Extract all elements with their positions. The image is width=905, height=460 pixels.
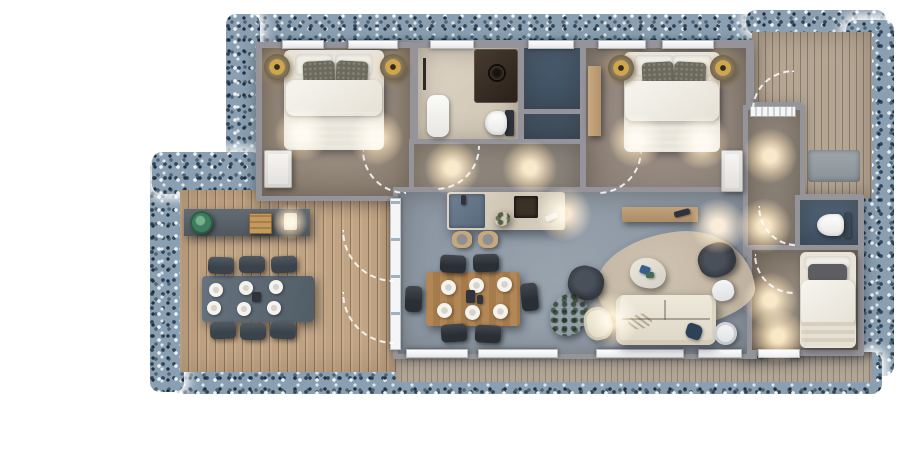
dining-centerpiece-small	[477, 295, 483, 304]
bedroom3-blanket	[801, 322, 855, 346]
window-bathroom-top	[430, 40, 474, 49]
dining-plate-6	[493, 304, 508, 319]
kitchen-stool-2	[478, 231, 498, 248]
room-storage-upper	[524, 48, 580, 110]
terrace-plate-4	[207, 301, 221, 315]
window-living-bottom-3	[596, 349, 684, 358]
terrace-planter-green	[190, 211, 213, 234]
bedroom1-wardrobe	[264, 150, 292, 188]
dining-chair-top-1	[440, 254, 467, 273]
dining-chair-left	[405, 286, 423, 313]
bedroom2-lamp-right	[715, 60, 731, 76]
terrace-chair-top-3	[271, 255, 298, 273]
bedroom1-duvet	[286, 80, 382, 116]
bathroom-toilet	[485, 111, 507, 135]
window-bedroom2-top-left	[598, 40, 646, 49]
window-storage-top	[528, 40, 574, 49]
terrace-plate-1	[209, 283, 223, 297]
dining-plate-3	[497, 277, 512, 292]
dining-plate-4	[437, 303, 452, 318]
bedroom2-blanket	[625, 117, 719, 151]
gravel-border-topleft-corner	[152, 152, 262, 194]
window-bedroom1-top-left	[282, 40, 324, 49]
terrace-table-centerpiece	[252, 292, 261, 302]
bathroom-shower-head	[490, 66, 504, 80]
window-bedroom1-top-right	[348, 40, 398, 49]
sofa-seam-vertical	[664, 300, 666, 320]
kitchen-faucet	[461, 195, 466, 205]
window-living-bottom-2	[478, 349, 558, 358]
terrace-chair-top-1	[208, 257, 235, 275]
terrace-chair-bottom-1	[210, 322, 237, 340]
dining-plate-5	[465, 305, 480, 320]
bathroom-towel-rail	[423, 58, 426, 90]
bedroom2-desk	[588, 66, 601, 136]
dining-chair-top-2	[473, 254, 500, 273]
bedroom2-duvet	[625, 81, 719, 121]
window-bedroom2-top-right	[662, 40, 714, 49]
window-bedroom3-bottom	[758, 349, 800, 358]
dining-chair-bottom-2	[475, 324, 502, 343]
dining-plate-1	[441, 280, 456, 295]
dining-chair-bottom-1	[440, 323, 467, 343]
terrace-crate	[249, 213, 272, 234]
bedroom1-blanket	[286, 112, 382, 148]
bedroom1-lamp-left	[269, 59, 285, 75]
bedroom1-lamp-right	[385, 59, 401, 75]
wc-toilet	[817, 214, 844, 236]
terrace-plate-5	[237, 302, 251, 316]
terrace-chair-top-2	[239, 256, 265, 273]
wc-toilet-cistern	[844, 212, 851, 238]
dining-centerpiece	[466, 290, 475, 303]
terrace-chair-bottom-2	[240, 323, 266, 340]
window-living-bottom-4	[698, 349, 742, 358]
kitchen-cooktop	[514, 196, 538, 218]
bathroom-sink	[427, 95, 449, 137]
terrace-plate-6	[267, 301, 281, 315]
bedroom3-duvet	[801, 280, 855, 326]
room-storage-lower	[524, 114, 580, 144]
terrace-chair-bottom-3	[270, 321, 297, 339]
terrace-lantern	[284, 213, 297, 230]
coffee-table-decor-green	[646, 272, 654, 278]
bedroom2-lamp-left	[613, 60, 629, 76]
kitchen-stool-1	[452, 231, 472, 248]
window-living-bottom-1	[406, 349, 468, 358]
dining-chair-right	[520, 282, 540, 312]
terrace-plate-2	[239, 281, 253, 295]
side-table-round	[714, 322, 737, 345]
entry-doormat	[808, 150, 860, 182]
floorplan-canvas	[0, 0, 905, 460]
bedroom2-wardrobe	[721, 150, 743, 192]
kitchen-island-sink	[449, 194, 485, 228]
terrace-plate-3	[269, 280, 283, 294]
